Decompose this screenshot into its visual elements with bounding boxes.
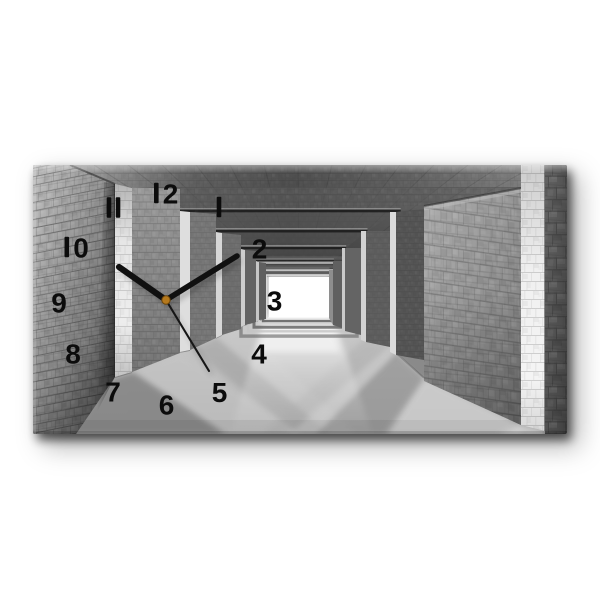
svg-text:0: 0 [73, 233, 89, 264]
svg-text:8: 8 [65, 339, 81, 370]
svg-text:3: 3 [267, 286, 283, 317]
svg-text:9: 9 [51, 288, 67, 319]
svg-text:5: 5 [212, 377, 228, 408]
svg-text:2: 2 [252, 234, 268, 265]
svg-text:4: 4 [251, 339, 267, 370]
svg-text:2: 2 [163, 179, 179, 210]
svg-text:6: 6 [159, 390, 175, 421]
svg-text:7: 7 [105, 377, 121, 408]
